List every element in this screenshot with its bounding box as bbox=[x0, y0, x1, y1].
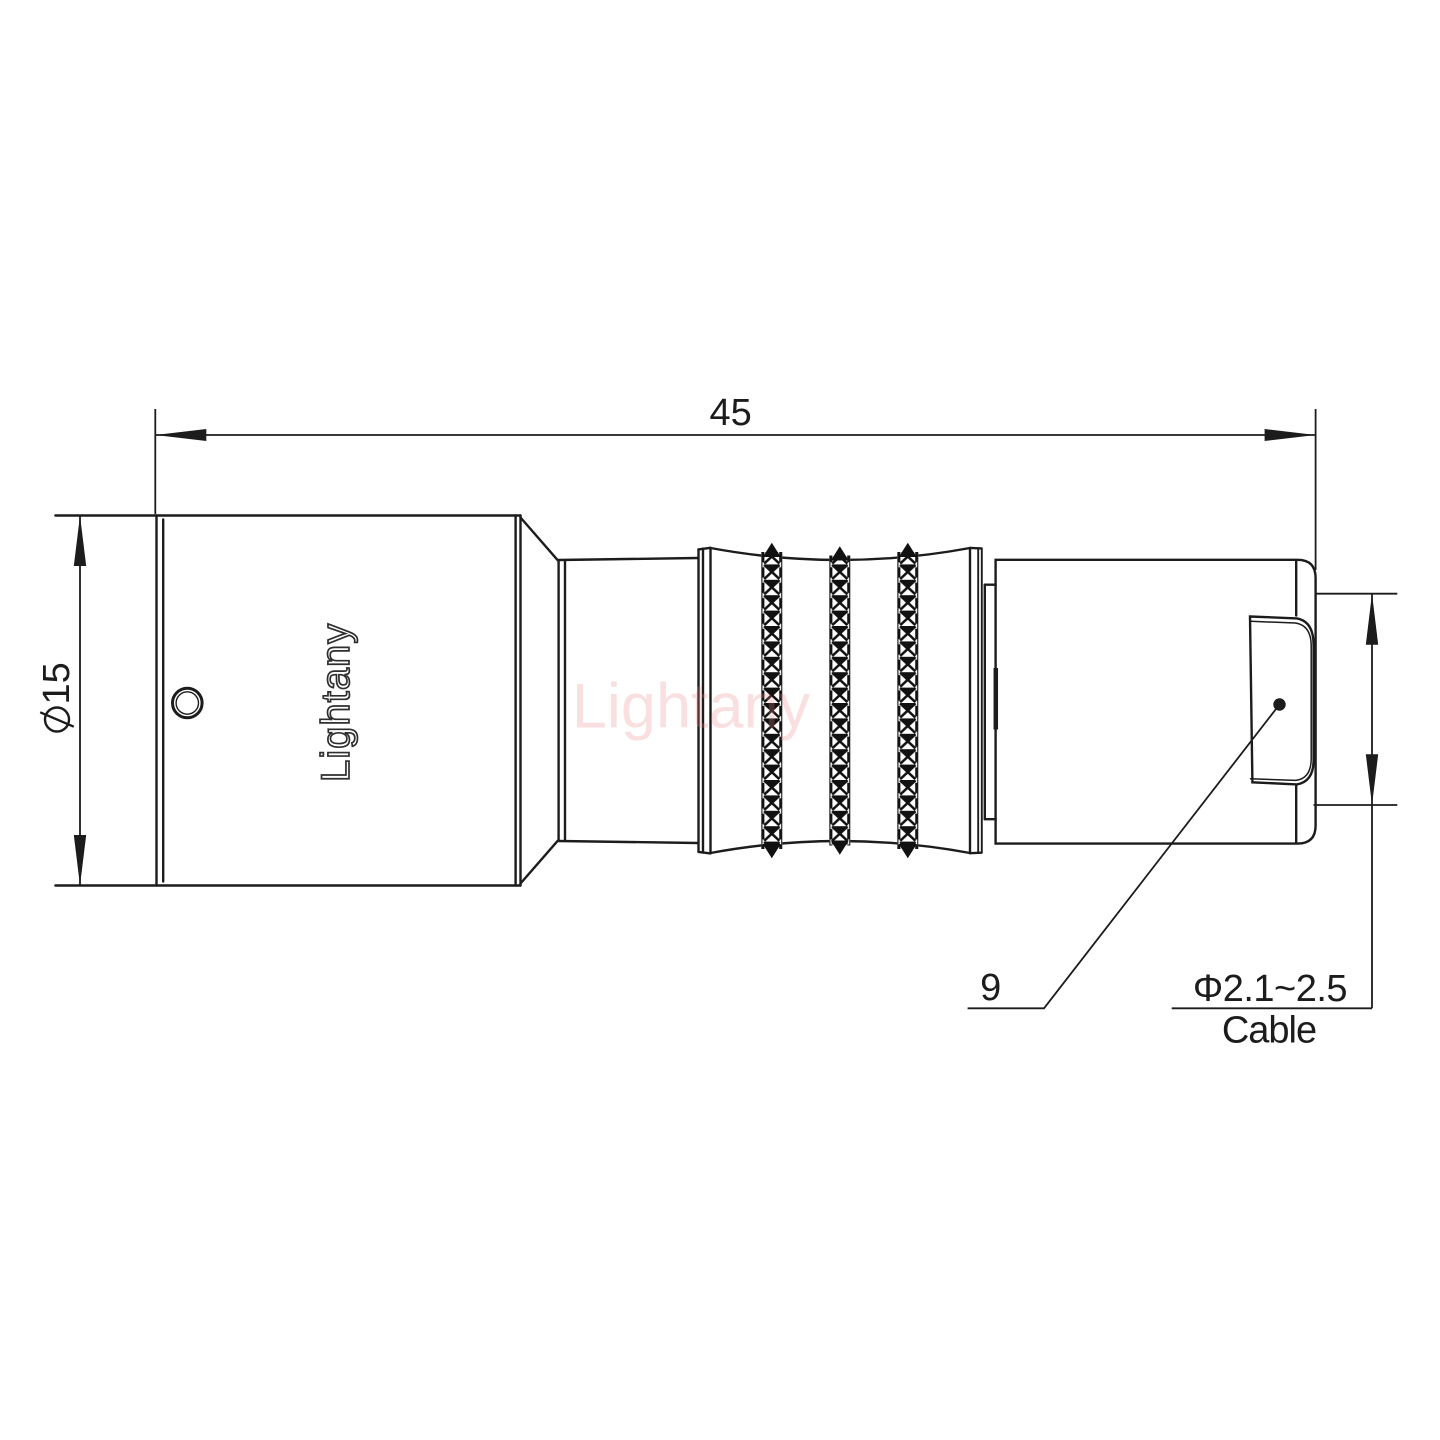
svg-text:Lightany: Lightany bbox=[572, 672, 811, 742]
svg-text:Cable: Cable bbox=[1222, 1010, 1316, 1052]
svg-text:Φ2.1~2.5: Φ2.1~2.5 bbox=[1193, 968, 1347, 1010]
svg-text:45: 45 bbox=[709, 392, 751, 434]
svg-text:Lightany: Lightany bbox=[314, 623, 358, 782]
svg-text:15: 15 bbox=[36, 662, 78, 704]
svg-text:9: 9 bbox=[980, 967, 1001, 1009]
